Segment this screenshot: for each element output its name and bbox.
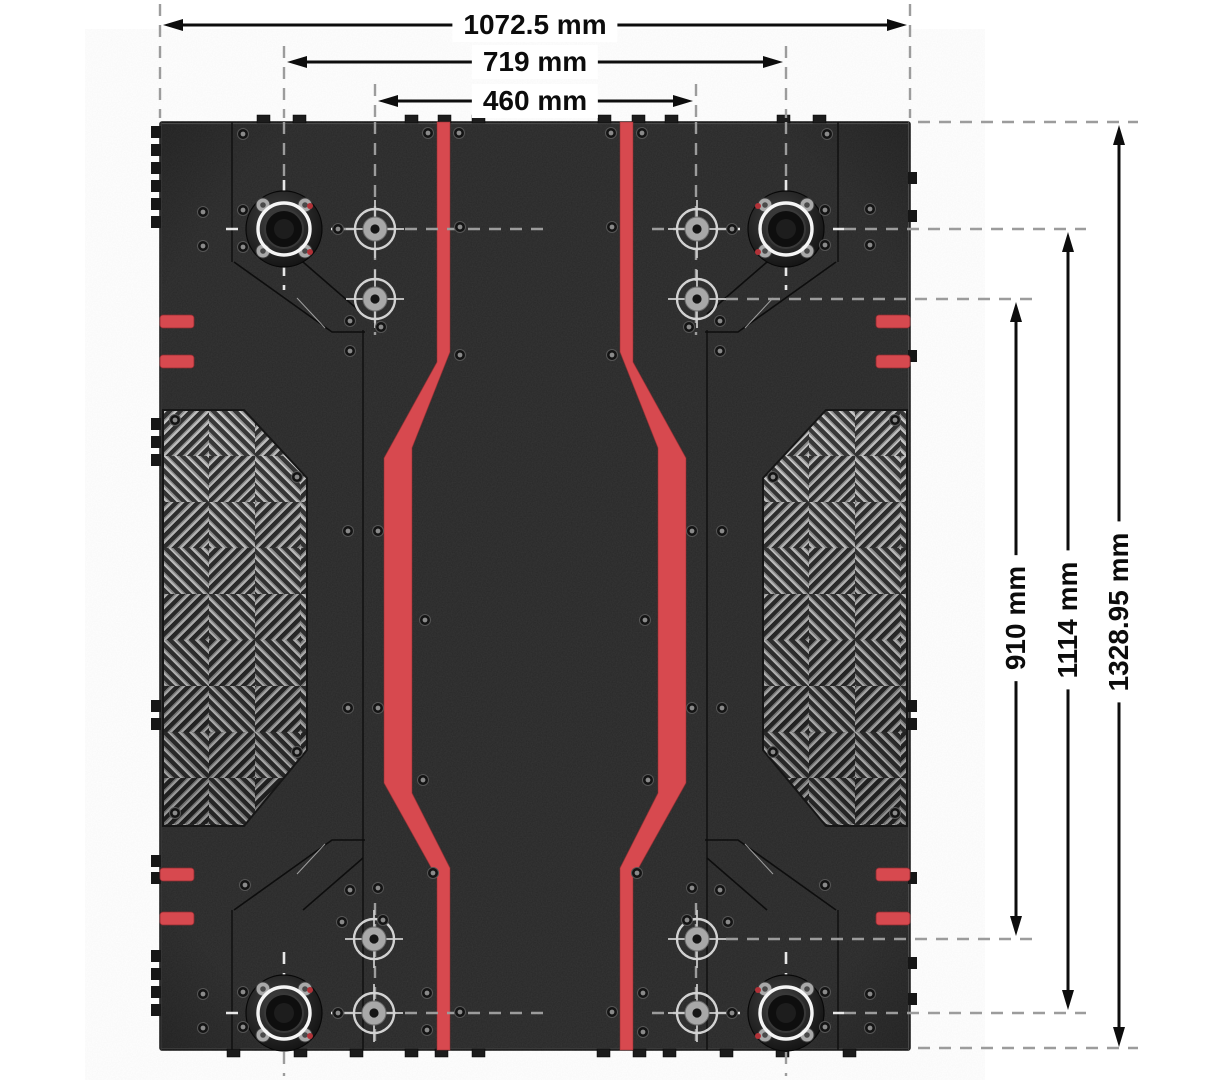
screw [170, 808, 181, 819]
screw [337, 917, 348, 928]
screw [687, 526, 698, 537]
screw-socket [173, 418, 178, 423]
screw [727, 224, 738, 235]
screw [607, 222, 618, 233]
wheel-hub [246, 191, 322, 267]
target-center-hole [692, 224, 701, 233]
hub-screw-socket [260, 202, 266, 208]
arrowhead-bottom [1062, 990, 1074, 1010]
dim-label-inner-mount-height: 910 mm [999, 555, 1033, 681]
screw-socket [868, 207, 873, 212]
screw-socket [457, 131, 462, 136]
screw-socket [241, 208, 246, 213]
target-center-hole [369, 934, 378, 943]
screw-socket [641, 1030, 646, 1035]
screw [455, 222, 466, 233]
dim-label-overall-width: 1072.5 mm [452, 8, 617, 42]
screw [238, 129, 249, 140]
screw [822, 129, 833, 140]
screw-socket [641, 991, 646, 996]
screw [820, 1022, 831, 1033]
dimension-drawing: 1072.5 mm 719 mm 460 mm 910 mm 1114 mm 1… [0, 0, 1228, 1080]
screw-socket [646, 778, 651, 783]
arrowhead-right [887, 19, 907, 31]
screw-socket [425, 1028, 430, 1033]
screw [238, 987, 249, 998]
hub-screw-socket [804, 202, 810, 208]
screw [292, 472, 303, 483]
screw-socket [241, 990, 246, 995]
screw-socket [823, 208, 828, 213]
screw-socket [336, 227, 341, 232]
screw-socket [720, 706, 725, 711]
screw-socket [340, 920, 345, 925]
screw [637, 128, 648, 139]
screw [687, 703, 698, 714]
target-center-hole [692, 294, 701, 303]
screw-socket [348, 888, 353, 893]
screw [455, 1007, 466, 1018]
arrowhead-left [287, 56, 307, 68]
screw [238, 205, 249, 216]
screw-socket [336, 1011, 341, 1016]
screw [238, 1022, 249, 1033]
screw-socket [868, 992, 873, 997]
screw [640, 615, 651, 626]
screw [820, 240, 831, 251]
screw [198, 989, 209, 1000]
screw-socket [771, 475, 776, 480]
screw [428, 868, 439, 879]
screw [343, 703, 354, 714]
screw-socket [458, 225, 463, 230]
screw-socket [423, 618, 428, 623]
screw [422, 988, 433, 999]
screw-socket [426, 131, 431, 136]
screw [170, 415, 181, 426]
hub-shaft [274, 1003, 294, 1023]
screw [715, 885, 726, 896]
screw-socket [823, 243, 828, 248]
screw [890, 808, 901, 819]
screw-socket [635, 871, 640, 876]
screw [632, 868, 643, 879]
screw [345, 346, 356, 357]
screw-socket [610, 353, 615, 358]
screw [768, 472, 779, 483]
screw-socket [730, 1011, 735, 1016]
wheel-hub [246, 975, 322, 1051]
screw [768, 747, 779, 758]
screw-socket [241, 132, 246, 137]
screw-socket [458, 353, 463, 358]
target-center-hole [370, 224, 379, 233]
screw-socket [690, 886, 695, 891]
screw-socket [823, 883, 828, 888]
screw-socket [241, 245, 246, 250]
screw [607, 1007, 618, 1018]
screw-socket [718, 319, 723, 324]
screw-socket [295, 750, 300, 755]
screw [606, 128, 617, 139]
hub-red-mark [755, 203, 761, 209]
screw [376, 322, 387, 333]
arrowhead-left [163, 19, 183, 31]
screw [343, 526, 354, 537]
dim-label-hub-spacing-width: 719 mm [472, 45, 598, 79]
screw-socket [720, 529, 725, 534]
screw-socket [376, 529, 381, 534]
screw [240, 880, 251, 891]
screw-socket [173, 811, 178, 816]
arrowhead-right [673, 95, 693, 107]
target-center-hole [369, 1008, 378, 1017]
screw [717, 526, 728, 537]
screw [727, 1008, 738, 1019]
screw [238, 242, 249, 253]
screw-socket [295, 475, 300, 480]
screw [865, 1023, 876, 1034]
screw-socket [201, 1026, 206, 1031]
screw-socket [458, 1010, 463, 1015]
screw-socket [640, 131, 645, 136]
screw [687, 883, 698, 894]
arrowhead-top [1062, 232, 1074, 252]
screw-socket [823, 1025, 828, 1030]
alignment-target [346, 200, 404, 258]
screw-socket [346, 529, 351, 534]
screw [420, 615, 431, 626]
hub-red-mark [307, 203, 313, 209]
hub-shaft [776, 1003, 796, 1023]
screw [422, 1025, 433, 1036]
screw [723, 917, 734, 928]
alignment-target [345, 910, 403, 968]
hub-screw-socket [302, 202, 308, 208]
hub-screw-socket [804, 986, 810, 992]
arrowhead-bottom [1010, 916, 1022, 936]
alignment-target [668, 910, 726, 968]
screw [455, 350, 466, 361]
screw [198, 241, 209, 252]
screw [717, 703, 728, 714]
hub-red-mark [307, 249, 313, 255]
screw [378, 915, 389, 926]
screw [373, 883, 384, 894]
screw-socket [893, 811, 898, 816]
screw-socket [379, 325, 384, 330]
screw-socket [243, 883, 248, 888]
arrowhead-right [763, 56, 783, 68]
hub-red-mark [307, 987, 313, 993]
hub-shaft [274, 219, 294, 239]
screw [333, 1008, 344, 1019]
screw [345, 316, 356, 327]
screw [638, 988, 649, 999]
hub-red-mark [755, 249, 761, 255]
arrowhead-left [378, 95, 398, 107]
screw [198, 1023, 209, 1034]
screw [643, 775, 654, 786]
screw-socket [643, 618, 648, 623]
hub-red-mark [755, 1033, 761, 1039]
alignment-targets [345, 200, 726, 1042]
wheel-hubs [246, 191, 824, 1051]
screw [715, 316, 726, 327]
hub-red-mark [755, 987, 761, 993]
screw [333, 224, 344, 235]
screw [198, 207, 209, 218]
screw-socket [610, 225, 615, 230]
screw-socket [730, 227, 735, 232]
screw-socket [348, 349, 353, 354]
screw [607, 350, 618, 361]
target-center-hole [692, 934, 701, 943]
screw-socket [431, 871, 436, 876]
alignment-target [668, 200, 726, 258]
screw-socket [201, 210, 206, 215]
alignment-target [345, 984, 403, 1042]
hub-screw-socket [762, 986, 768, 992]
screw-socket [868, 243, 873, 248]
screw-socket [771, 750, 776, 755]
screw [418, 775, 429, 786]
screw-socket [425, 991, 430, 996]
screw [820, 880, 831, 891]
alignment-target [668, 984, 726, 1042]
screw-socket [241, 1025, 246, 1030]
screw [454, 128, 465, 139]
screw-socket [718, 888, 723, 893]
screw-socket [381, 918, 386, 923]
screw [373, 703, 384, 714]
dim-label-hub-spacing-height: 1114 mm [1051, 551, 1085, 690]
screw-socket [421, 778, 426, 783]
screw-socket [690, 529, 695, 534]
wheel-hub [748, 975, 824, 1051]
dim-label-overall-height: 1328.95 mm [1102, 522, 1136, 703]
screw [890, 415, 901, 426]
screw-socket [201, 992, 206, 997]
screw [865, 240, 876, 251]
hub-red-mark [307, 1033, 313, 1039]
screw-socket [893, 418, 898, 423]
hub-screw-socket [260, 986, 266, 992]
dim-label-inner-mount-width: 460 mm [472, 84, 598, 118]
screw-socket [376, 706, 381, 711]
hub-screw-socket [302, 986, 308, 992]
screw-socket [610, 1010, 615, 1015]
screw [682, 915, 693, 926]
screw-socket [687, 325, 692, 330]
screw [715, 346, 726, 357]
centerline-crosshairs [226, 180, 844, 1050]
screw [820, 205, 831, 216]
screw-socket [376, 886, 381, 891]
screw [865, 204, 876, 215]
screw [865, 989, 876, 1000]
arrowhead-top [1010, 302, 1022, 322]
screw-socket [609, 131, 614, 136]
target-center-hole [692, 1008, 701, 1017]
screw-socket [825, 132, 830, 137]
screw-socket [868, 1026, 873, 1031]
wheel-hub [748, 191, 824, 267]
screw [820, 987, 831, 998]
arrowhead-bottom [1113, 1027, 1125, 1047]
screw-socket [823, 990, 828, 995]
screw-socket [726, 920, 731, 925]
screw-socket [685, 918, 690, 923]
hub-shaft [776, 219, 796, 239]
target-center-hole [370, 294, 379, 303]
screw-socket [346, 706, 351, 711]
screw [638, 1027, 649, 1038]
tread-panel-outlines [163, 410, 907, 826]
screw [423, 128, 434, 139]
annotation-overlay-layer [0, 0, 1228, 1080]
arrowhead-top [1113, 125, 1125, 145]
screw [684, 322, 695, 333]
screw-socket [348, 319, 353, 324]
screw [345, 885, 356, 896]
screw [292, 747, 303, 758]
screw-socket [718, 349, 723, 354]
screw-socket [201, 244, 206, 249]
screw-socket [690, 706, 695, 711]
screw [373, 526, 384, 537]
hub-screw-socket [762, 202, 768, 208]
